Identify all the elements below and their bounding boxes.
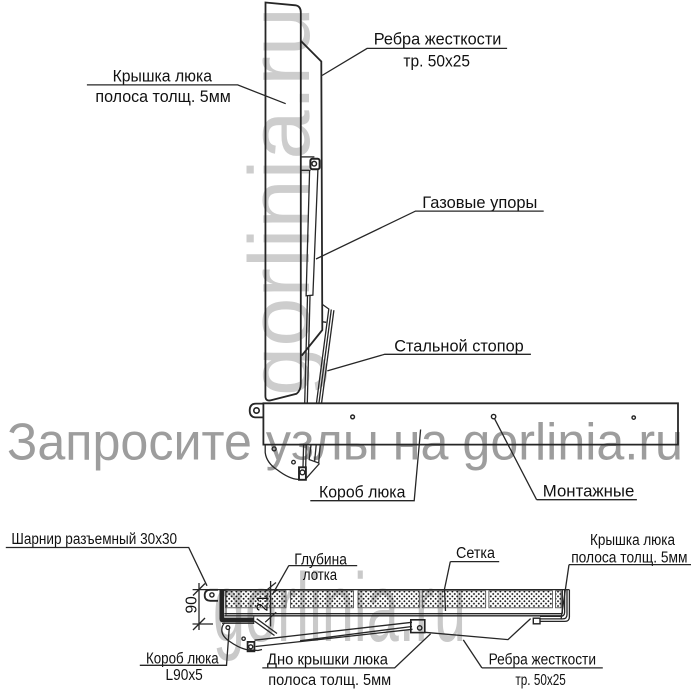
svg-text:лотка: лотка [303,567,338,584]
svg-text:Запросите узлы на gorlinia.ru: Запросите узлы на gorlinia.ru [7,413,683,471]
svg-text:Короб люка: Короб люка [319,483,406,502]
svg-text:21: 21 [255,594,272,611]
svg-text:тр. 50х25: тр. 50х25 [403,52,470,71]
svg-text:Крышка люка: Крышка люка [590,532,675,549]
svg-text:90: 90 [184,596,201,614]
svg-text:gorlinia.ru: gorlinia.ru [232,7,328,396]
svg-text:Газовые упоры: Газовые упоры [422,193,537,212]
svg-text:полоса толщ. 5мм: полоса толщ. 5мм [268,672,391,689]
svg-text:полоса толщ. 5мм: полоса толщ. 5мм [95,87,230,106]
svg-text:Дно крышки люка: Дно крышки люка [267,652,388,669]
svg-text:тр. 50х25: тр. 50х25 [515,672,565,689]
svg-text:Стальной стопор: Стальной стопор [394,336,524,355]
svg-text:L90х5: L90х5 [166,667,203,684]
svg-text:Шарнир разъемный 30х30: Шарнир разъемный 30х30 [11,531,177,548]
svg-text:Ребра жесткости: Ребра жесткости [374,29,502,48]
svg-text:Крышка люка: Крышка люка [113,67,213,86]
svg-text:Сетка: Сетка [456,545,495,562]
svg-text:Ребра жесткости: Ребра жесткости [489,652,596,669]
svg-text:Монтажные: Монтажные [543,482,635,501]
